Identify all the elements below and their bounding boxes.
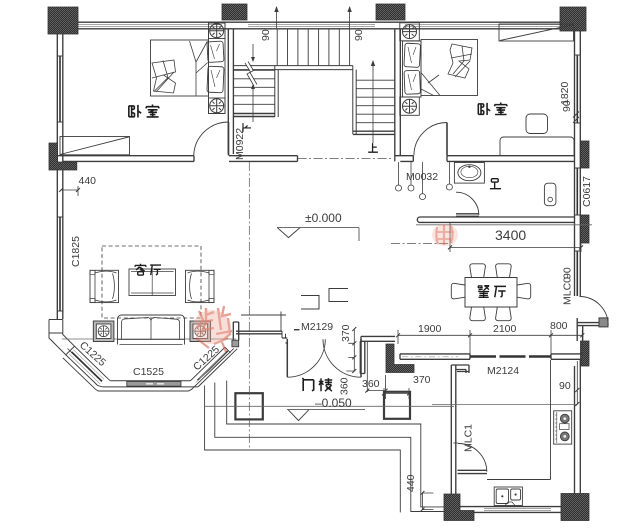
svg-text:C1525: C1525 <box>133 366 164 378</box>
svg-text:90: 90 <box>561 100 573 112</box>
svg-text:360: 360 <box>362 378 380 390</box>
svg-text:440: 440 <box>405 474 417 492</box>
svg-text:800: 800 <box>550 320 568 332</box>
svg-text:440: 440 <box>79 175 97 187</box>
svg-text:M0922: M0922 <box>234 128 246 160</box>
svg-text:MLC1: MLC1 <box>463 424 475 452</box>
svg-text:C0617: C0617 <box>581 176 593 207</box>
svg-text:370: 370 <box>413 374 431 386</box>
svg-text:MLC0: MLC0 <box>562 277 574 305</box>
svg-text:3400: 3400 <box>495 227 526 243</box>
svg-text:90: 90 <box>353 29 365 41</box>
svg-text:360: 360 <box>339 377 351 395</box>
svg-text:370: 370 <box>340 324 352 342</box>
svg-text:M0032: M0032 <box>406 171 438 183</box>
svg-text:C1825: C1825 <box>70 236 82 267</box>
svg-text:90: 90 <box>559 380 571 392</box>
svg-text:±0.000: ±0.000 <box>305 211 342 225</box>
svg-text:2100: 2100 <box>493 323 517 335</box>
svg-text:–0.050: –0.050 <box>315 396 352 410</box>
svg-text:90: 90 <box>260 29 272 41</box>
svg-text:M2124: M2124 <box>487 365 519 377</box>
svg-text:M2129: M2129 <box>301 321 333 333</box>
svg-text:1900: 1900 <box>418 323 442 335</box>
